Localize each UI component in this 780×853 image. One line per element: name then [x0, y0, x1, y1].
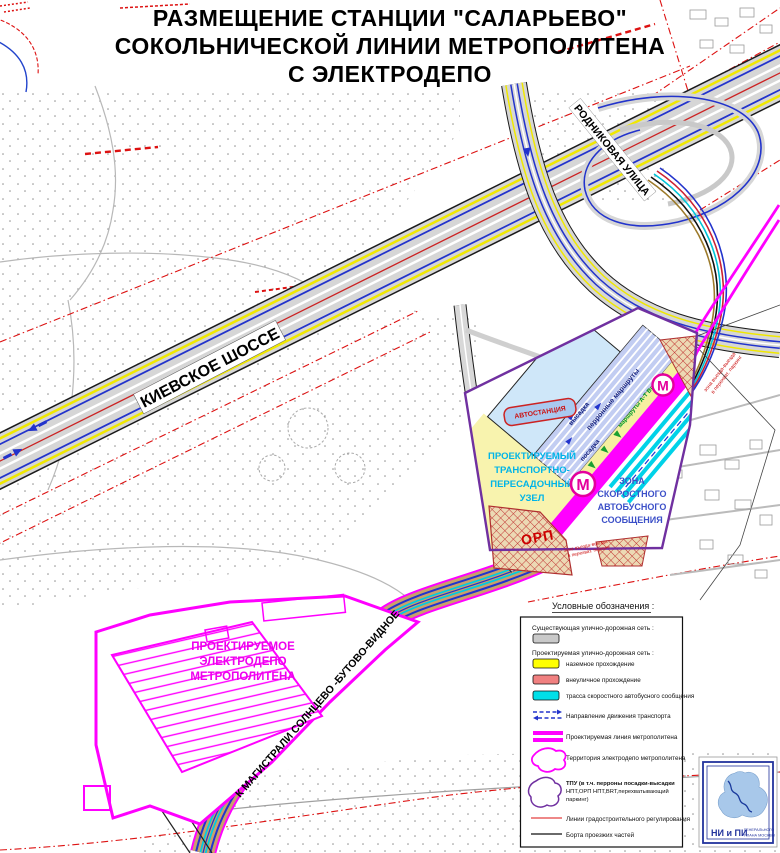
legend: Условные обозначения : Существующая улич…: [521, 601, 695, 847]
logo-sub2: ПЛАНА МОСКВЫ: [744, 834, 776, 838]
title-line-1: РАЗМЕЩЕНИЕ СТАНЦИИ "САЛАРЬЕВО": [0, 4, 780, 32]
logo-abbr: НИ и ПИ: [711, 828, 747, 838]
legend-metro-label: Проектируемая линия метрополитена: [566, 734, 678, 741]
legend-brt-label: трасса скоростного автобусного сообщения: [566, 692, 694, 700]
site-plan-map: высадка перронные маршруты посадка маршр…: [0, 0, 780, 853]
logo-sub1: ГЕНЕРАЛЬНОГО: [744, 828, 774, 832]
legend-regline-label: Линии градостроительного регулирования: [566, 816, 690, 823]
legend-tpu-line: паркинг): [566, 797, 589, 803]
metro-symbol-south: М: [571, 472, 595, 496]
legend-swatch-surface: [533, 659, 559, 668]
legend-swatch-offstreet: [533, 675, 559, 684]
site-plan-sheet: РАЗМЕЩЕНИЕ СТАНЦИИ "САЛАРЬЕВО" СОКОЛЬНИЧ…: [0, 0, 780, 853]
depot-label-line: ЭЛЕКТРОДЕПО: [199, 656, 286, 668]
tpu-label-line: ТРАНСПОРТНО-: [494, 465, 570, 476]
legend-swatch-existing: [533, 634, 559, 643]
metro-symbol-north: М: [653, 375, 674, 396]
legend-metro-bar: [533, 738, 563, 742]
title-line-2: СОКОЛЬНИЧЕСКОЙ ЛИНИИ МЕТРОПОЛИТЕНА: [0, 32, 780, 60]
legend-projected-label: Проектируемая улично-дорожная сеть :: [532, 650, 654, 657]
depot-label-line: МЕТРОПОЛИТЕНА: [190, 671, 295, 683]
institute-logo: НИ и ПИ ГЕНЕРАЛЬНОГО ПЛАНА МОСКВЫ: [699, 757, 777, 847]
tpu-label-line: УЗЕЛ: [520, 493, 545, 504]
tpu-label-line: ПЕРЕСАДОЧНЫЙ: [490, 478, 574, 490]
tpu-label-line: ПРОЕКТИРУЕМЫЙ: [488, 450, 576, 462]
legend-existing-label: Существующая улично-дорожная сеть :: [532, 625, 654, 632]
depot-label: ПРОЕКТИРУЕМОЕ ЭЛЕКТРОДЕПО МЕТРОПОЛИТЕНА: [190, 641, 295, 683]
brt-zone-line: СКОРОСТНОГО: [597, 489, 666, 499]
brt-zone-line: ЗОНА: [619, 476, 645, 486]
title-line-3: С ЭЛЕКТРОДЕПО: [0, 60, 780, 88]
metro-m-letter: М: [576, 477, 589, 494]
drawing-title: РАЗМЕЩЕНИЕ СТАНЦИИ "САЛАРЬЕВО" СОКОЛЬНИЧ…: [0, 4, 780, 88]
legend-metro-bar: [533, 731, 563, 735]
legend-tpu-line: НПТ,ОРП НПТ,BRT,перехватывающий: [566, 788, 669, 795]
legend-depot-label: Территория электродепо метрополитена: [566, 755, 686, 762]
legend-swatch-brt: [533, 691, 559, 700]
legend-tpu-line: ТПУ (в т.ч. перроны посадки-высадки: [566, 781, 675, 787]
brt-zone-line: СООБЩЕНИЯ: [601, 515, 662, 525]
legend-curb-label: Борта проезжих частей: [566, 831, 635, 839]
legend-offstreet-label: внеуличное прохождение: [566, 677, 641, 684]
legend-surface-label: наземное прохождение: [566, 661, 635, 668]
metro-m-letter: М: [657, 378, 669, 394]
legend-title: Условные обозначения :: [552, 601, 654, 611]
brt-zone-line: АВТОБУСНОГО: [598, 502, 667, 512]
depot-label-line: ПРОЕКТИРУЕМОЕ: [191, 641, 295, 653]
legend-direction-label: Направление движения транспорта: [566, 713, 671, 720]
